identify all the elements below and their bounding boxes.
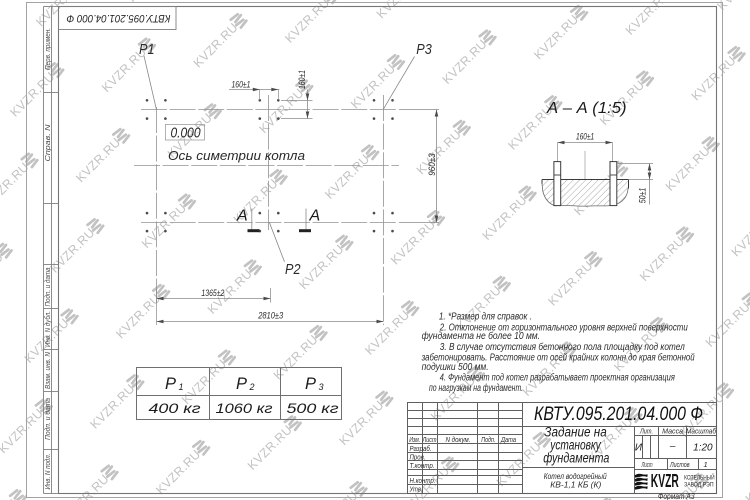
svg-text:фундамента: фундамента [543,451,609,466]
svg-text:400 кг: 400 кг [149,400,201,416]
svg-text:KVZR: KVZR [651,470,679,491]
svg-text:подушки 500 мм.: подушки 500 мм. [422,362,489,373]
svg-text:160±1: 160±1 [576,132,594,143]
svg-text:0.000: 0.000 [171,125,202,142]
svg-text:2: 2 [249,382,255,392]
svg-text:Р: Р [165,375,176,393]
svg-text:Т.контр.: Т.контр. [410,461,435,470]
svg-text:по нагрузкам на фундамент.: по нагрузкам на фундамент. [429,383,523,394]
svg-text:Р2: Р2 [285,261,301,278]
svg-text:ЗАВОД РЭП: ЗАВОД РЭП [684,481,714,488]
svg-text:фундамента не более 10 мм.: фундамента не более 10 мм. [422,331,540,342]
svg-text:КВ-1,1 КБ (К): КВ-1,1 КБ (К) [550,480,601,490]
svg-text:Р1: Р1 [139,41,155,58]
svg-text:4. Фундамент под котел разраба: 4. Фундамент под котел разрабатывает про… [440,373,676,384]
svg-text:Дата: Дата [500,435,516,444]
svg-text:1060 кг: 1060 кг [216,400,273,416]
svg-text:1: 1 [179,382,184,392]
svg-text:Масштаб: Масштаб [686,426,717,435]
svg-text:А: А [309,208,321,225]
svg-text:3. В случае отсутствия бетонно: 3. В случае отсутствия бетонного пола пл… [440,342,685,353]
svg-text:3: 3 [319,382,324,392]
svg-text:Масса: Масса [662,426,683,435]
svg-text:Изм.: Изм. [409,435,420,444]
svg-text:Инв. N подл.: Инв. N подл. [43,454,52,490]
svg-text:Р3: Р3 [416,41,432,58]
svg-text:160±1: 160±1 [232,79,251,90]
svg-text:N докум.: N докум. [446,435,471,444]
svg-text:160±1: 160±1 [297,70,308,89]
svg-text:960±3: 960±3 [427,153,438,176]
svg-text:Лист: Лист [641,460,653,469]
svg-text:КВТУ.095.201.04.000 Ф: КВТУ.095.201.04.000 Ф [534,403,703,425]
svg-text:1: 1 [704,460,708,469]
svg-text:КОТЕЛЬНЫЙ: КОТЕЛЬНЫЙ [684,473,715,482]
svg-text:–: – [669,441,676,452]
svg-text:Р: Р [305,375,316,393]
svg-text:1. *Размер для справок .: 1. *Размер для справок . [439,312,532,323]
svg-text:2810±3: 2810±3 [257,310,283,321]
svg-text:И: И [635,443,643,454]
svg-text:500 кг: 500 кг [287,400,339,416]
svg-text:Справ. N: Справ. N [43,124,52,162]
svg-text:Утв.: Утв. [409,485,423,494]
svg-text:Лист: Лист [422,435,437,444]
svg-text:50±1: 50±1 [638,188,649,204]
svg-text:1365±2: 1365±2 [201,288,225,299]
svg-text:Р: Р [236,375,247,393]
svg-text:Формат А3: Формат А3 [658,492,695,500]
svg-text:Взам. инв. N: Взам. инв. N [43,351,52,389]
svg-text:Ось симетрии котла: Ось симетрии котла [168,148,305,163]
svg-text:Подп. и дата: Подп. и дата [43,268,52,307]
svg-text:А: А [236,208,248,225]
svg-text:Листов: Листов [669,460,689,469]
svg-text:1:20: 1:20 [693,443,713,454]
svg-text:Перв. примен.: Перв. примен. [43,28,52,70]
svg-text:Инв. N дубл.: Инв. N дубл. [43,311,52,347]
svg-text:Подп. и дата: Подп. и дата [43,398,52,440]
svg-text:Лит.: Лит. [639,426,653,435]
svg-text:А – А (1:5): А – А (1:5) [546,100,627,117]
svg-text:Подп.: Подп. [481,435,495,444]
svg-text:КВТУ.095.201.04.000 Ф: КВТУ.095.201.04.000 Ф [66,12,170,24]
